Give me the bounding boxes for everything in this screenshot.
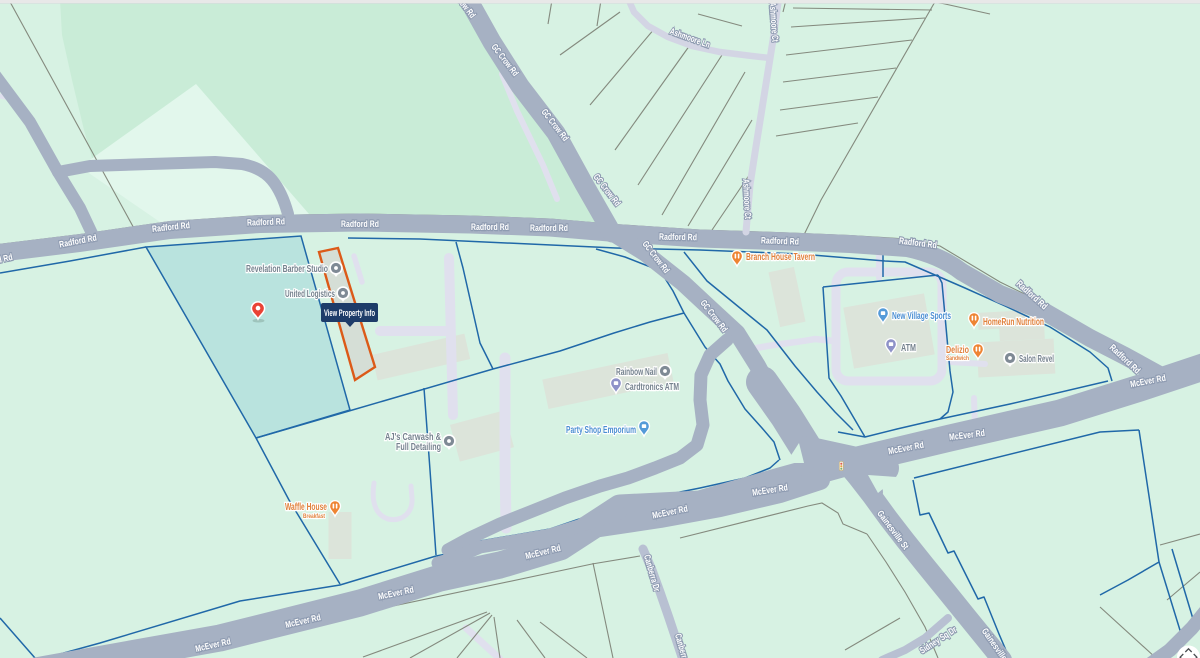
svg-text:Party Shop Emporium: Party Shop Emporium [566,425,636,436]
svg-text:Radford Rd: Radford Rd [247,216,285,227]
svg-text:Radford Rd: Radford Rd [659,232,697,243]
svg-text:Ashmoore Ct: Ashmoore Ct [741,179,753,219]
svg-text:HomeRun Nutrition: HomeRun Nutrition [983,317,1044,328]
svg-text:Radford Rd: Radford Rd [341,219,379,229]
svg-text:Branch House Tavern: Branch House Tavern [746,252,815,263]
svg-text:Sandwich: Sandwich [946,355,969,362]
svg-text:United Logistics: United Logistics [285,289,335,300]
svg-text:Cardtronics ATM: Cardtronics ATM [625,382,679,393]
svg-text:Radford Rd: Radford Rd [530,223,568,233]
svg-text:Salon Revel: Salon Revel [1019,354,1054,365]
svg-text:Radford Rd: Radford Rd [471,222,509,232]
svg-text:Radford Rd: Radford Rd [761,235,799,246]
svg-text:Breakfast: Breakfast [303,513,326,520]
svg-text:ATM: ATM [901,343,916,354]
svg-text:View Property Info: View Property Info [324,308,375,319]
svg-text:New Village Sports: New Village Sports [892,311,951,322]
svg-text:Full Detailing: Full Detailing [396,442,441,453]
svg-text:Waffle House: Waffle House [285,502,327,513]
svg-text:Revelation Barber Studio: Revelation Barber Studio [246,264,328,275]
svg-text:Rainbow Nail: Rainbow Nail [616,367,657,378]
